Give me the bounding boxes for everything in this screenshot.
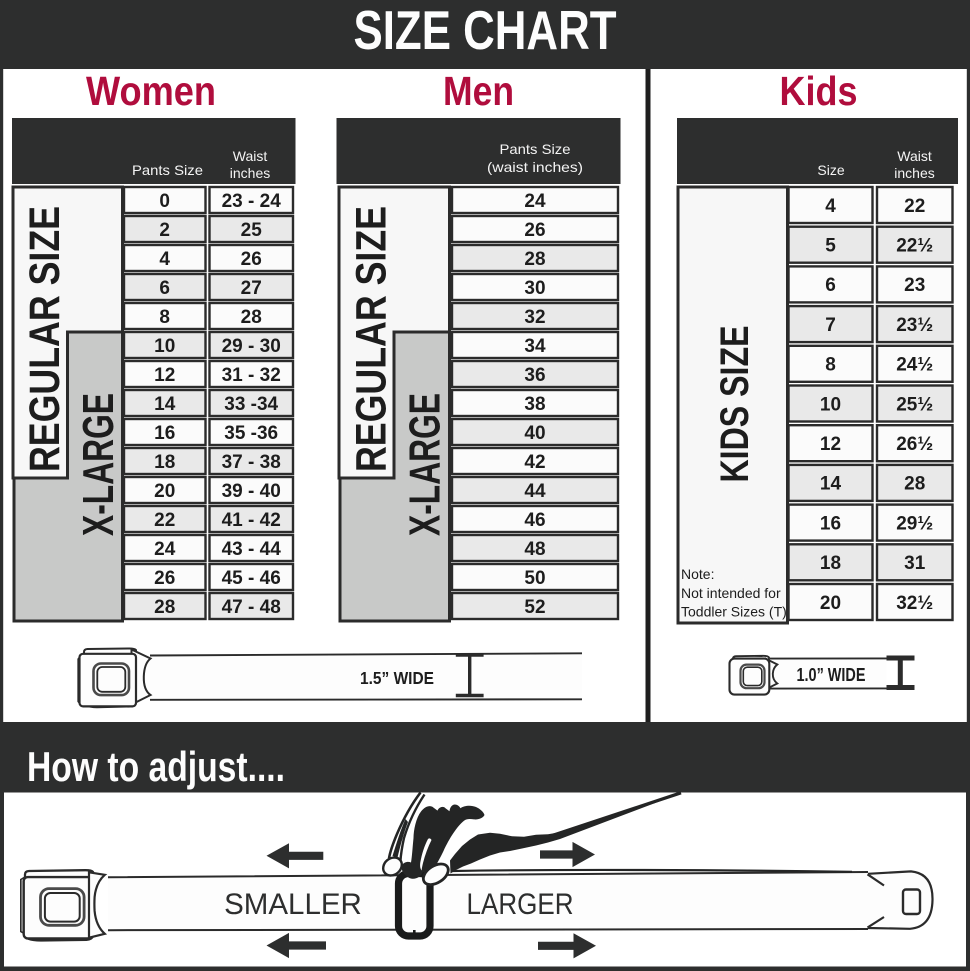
svg-text:Waist: Waist [233,148,268,164]
svg-text:inches: inches [894,165,934,181]
svg-text:22: 22 [154,510,175,531]
svg-text:23½: 23½ [896,315,933,336]
svg-text:29½: 29½ [896,513,933,534]
svg-text:10: 10 [154,336,175,357]
svg-text:0: 0 [159,191,170,212]
svg-text:23: 23 [904,275,925,296]
svg-text:Size: Size [817,162,844,178]
svg-text:Not intended for: Not intended for [681,585,781,601]
svg-text:42: 42 [524,452,545,473]
svg-text:1.5” WIDE: 1.5” WIDE [360,668,434,688]
svg-text:48: 48 [524,539,545,560]
svg-text:6: 6 [159,278,170,299]
svg-text:REGULAR SIZE: REGULAR SIZE [21,206,69,472]
svg-text:22½: 22½ [896,236,933,257]
svg-text:Pants Size: Pants Size [132,162,203,178]
svg-text:24½: 24½ [896,355,933,376]
svg-text:28: 28 [904,474,925,495]
svg-text:34: 34 [524,336,546,357]
svg-text:28: 28 [241,307,262,328]
svg-text:31 - 32: 31 - 32 [222,365,281,386]
svg-text:Pants Size: Pants Size [500,141,571,157]
svg-text:32½: 32½ [896,593,933,614]
svg-text:5: 5 [825,236,836,257]
svg-text:12: 12 [154,365,175,386]
svg-text:12: 12 [820,434,841,455]
svg-text:6: 6 [825,275,836,296]
svg-text:32: 32 [524,307,545,328]
svg-text:25: 25 [241,220,263,241]
svg-text:25½: 25½ [896,394,933,415]
svg-text:44: 44 [524,481,546,502]
svg-text:8: 8 [825,355,836,376]
svg-text:38: 38 [524,394,545,415]
svg-text:40: 40 [524,423,545,444]
svg-text:36: 36 [524,365,545,386]
svg-text:Note:: Note: [681,566,714,582]
svg-text:27: 27 [241,278,262,299]
svg-text:X-LARGE: X-LARGE [74,393,123,536]
svg-text:KIDS SIZE: KIDS SIZE [713,326,757,483]
svg-text:39 - 40: 39 - 40 [222,481,281,502]
svg-text:29 - 30: 29 - 30 [222,336,281,357]
svg-text:26: 26 [154,568,175,589]
svg-text:4: 4 [825,196,836,217]
svg-text:(waist inches): (waist inches) [487,159,583,175]
svg-text:47 - 48: 47 - 48 [222,597,281,618]
svg-text:REGULAR SIZE: REGULAR SIZE [348,206,396,472]
svg-text:Women: Women [86,68,216,114]
svg-text:8: 8 [159,307,170,328]
svg-text:24: 24 [154,539,176,560]
svg-text:28: 28 [524,249,545,270]
svg-text:26: 26 [241,249,262,270]
svg-text:30: 30 [524,278,545,299]
svg-text:23 - 24: 23 - 24 [222,191,282,212]
svg-text:LARGER: LARGER [467,888,574,921]
svg-text:20: 20 [154,481,175,502]
svg-text:14: 14 [820,474,842,495]
svg-text:16: 16 [154,423,175,444]
svg-text:35 -36: 35 -36 [224,423,278,444]
svg-text:24: 24 [524,191,546,212]
svg-text:Toddler Sizes (T): Toddler Sizes (T) [681,604,787,620]
svg-text:31: 31 [904,553,926,574]
svg-text:How to adjust....: How to adjust.... [27,743,285,790]
svg-text:inches: inches [230,165,270,181]
svg-text:26: 26 [524,220,545,241]
svg-text:1.0” WIDE: 1.0” WIDE [797,665,866,685]
svg-text:28: 28 [154,597,175,618]
svg-text:20: 20 [820,593,841,614]
svg-text:50: 50 [524,568,545,589]
svg-text:45 - 46: 45 - 46 [222,568,281,589]
svg-text:Kids: Kids [780,68,858,114]
svg-text:43 - 44: 43 - 44 [222,539,282,560]
svg-text:16: 16 [820,513,841,534]
svg-text:10: 10 [820,394,841,415]
svg-text:26½: 26½ [896,434,933,455]
svg-text:SIZE CHART: SIZE CHART [354,0,617,61]
svg-text:14: 14 [154,394,176,415]
svg-text:Men: Men [443,68,514,114]
svg-text:18: 18 [820,553,841,574]
svg-text:46: 46 [524,510,545,531]
svg-text:4: 4 [159,249,170,270]
svg-text:7: 7 [825,315,836,336]
svg-text:22: 22 [904,196,925,217]
svg-text:2: 2 [159,220,170,241]
svg-text:SMALLER: SMALLER [224,888,362,921]
svg-text:Waist: Waist [897,148,932,164]
svg-text:37 - 38: 37 - 38 [222,452,281,473]
svg-text:18: 18 [154,452,175,473]
svg-text:33 -34: 33 -34 [224,394,278,415]
svg-text:41 - 42: 41 - 42 [222,510,281,531]
svg-text:52: 52 [524,597,545,618]
svg-text:X-LARGE: X-LARGE [401,393,450,536]
